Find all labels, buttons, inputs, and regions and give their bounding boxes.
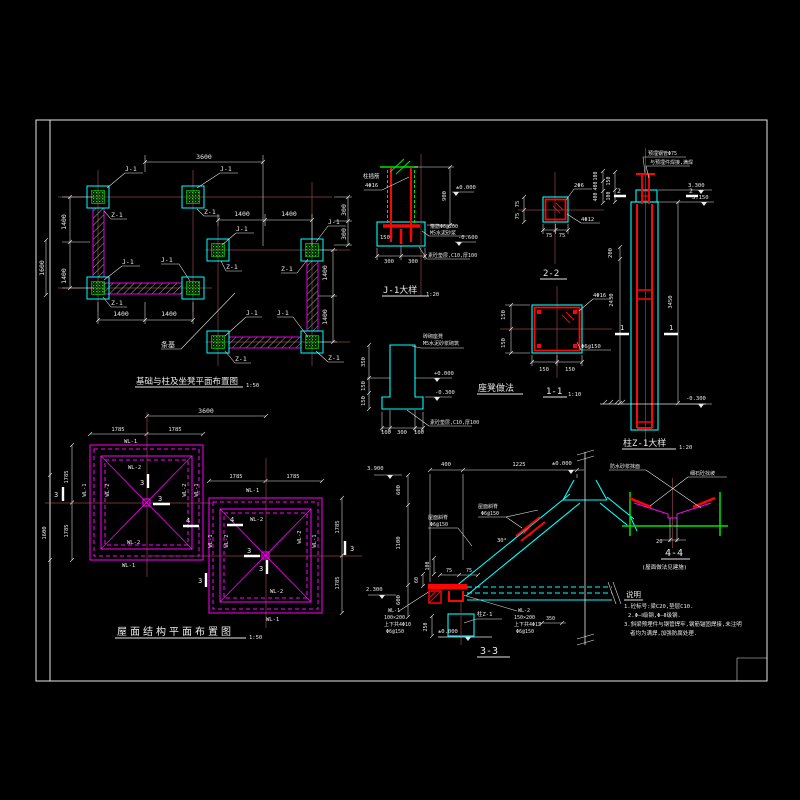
foundation_plan-label-12: 1400 — [60, 268, 68, 284]
sec_3_3-label-3: ±0.000 — [552, 461, 572, 467]
foundation_plan-label-6: 1400 — [281, 210, 297, 218]
roof_plan-label-23: WL-1 — [208, 534, 214, 547]
sec_2_2-label-8: 400 — [593, 192, 599, 201]
foundation_plan-label-11: 1400 — [60, 214, 68, 230]
j1_detail-label-3: ±0.000 — [456, 185, 476, 191]
sec_2_2-label-2: 75 — [515, 201, 521, 208]
sec_3_3-label-9: Φ6@150 — [481, 511, 499, 517]
foundation_plan-label-27: 条基 — [161, 340, 175, 349]
bench_detail-label-1: M5水泥砂浆砌筑 — [423, 340, 459, 347]
sec_2_2-label-4: 75 — [546, 233, 553, 239]
bench_detail-label-0: 砖砌座凳 — [423, 333, 443, 340]
sec_3_3-label-1: 400 — [441, 462, 451, 468]
foundation_plan-label-7: J-1 — [236, 225, 248, 233]
notes-heading: 说明 — [626, 589, 641, 599]
roof_plan-label-6: WL-2 — [105, 483, 111, 496]
sec_1_1-scale: 1:10 — [568, 392, 581, 398]
notes-label-2: 2.Φ—Ⅰ级钢,Φ—Ⅱ级钢. — [628, 611, 681, 619]
roof_plan-label-33: 1785 — [335, 520, 341, 533]
sec_3_3-label-23: 柱Z-1 — [477, 610, 492, 618]
sec_2_2-label-0: 2Φ6 — [574, 183, 584, 189]
notes-label-4: 者均为满焊,加强防腐处理. — [630, 629, 697, 637]
col_z1-scale: 1:20 — [679, 445, 692, 451]
sec_3_3-label-26: 上下共4Φ12 — [514, 621, 541, 628]
roof_plan-label-32: WL-1 — [266, 617, 279, 623]
sec_2_2-title: 2-2 — [543, 269, 559, 279]
bench_detail-label-3: 150 — [361, 381, 367, 391]
foundation_plan-label-17: 1400 — [113, 310, 129, 318]
roof_plan-label-24: WL-2 — [224, 534, 230, 547]
foundation_plan-label-13: 1600 — [38, 260, 46, 276]
col_z1-label-0: 预埋钢管Φ75 — [648, 150, 677, 157]
col_z1-title: 柱Z-1大样 — [623, 437, 666, 449]
col_z1-label-1: 与预埋件焊接,满焊 — [650, 159, 693, 166]
cad-drawing-sheet: 3600J-1J-1Z-1Z-114001400J-1J-1Z-1Z-11400… — [0, 0, 800, 800]
roof_plan-label-4: WL-2 — [128, 465, 141, 471]
bench_detail-label-6: -0.300 — [435, 390, 455, 396]
roof_plan-label-7: WL-2 — [182, 483, 188, 496]
sec_3_3-label-17: WL-1 — [388, 608, 400, 614]
foundation_plan-label-0: 3600 — [196, 153, 212, 161]
j1_detail-label-4: -0.600 — [458, 235, 478, 241]
beam-top-bar — [428, 584, 467, 590]
bench_detail-label-10: 素砼垫层,C10,厚100 — [430, 419, 479, 426]
sec_3_3-label-20: Φ6@150 — [386, 629, 404, 635]
sec_1_1-label-3: 150 — [501, 338, 507, 348]
sec_3_3-label-28: 350 — [546, 616, 555, 622]
foundation_plan-label-24: 1400 — [321, 309, 329, 325]
j1_detail-label-1: 4Φ16 — [365, 183, 378, 189]
roof_plan-label-1: 1785 — [111, 427, 124, 433]
foundation_plan-label-18: 1400 — [161, 310, 177, 318]
roof_plan-scale: 1:50 — [249, 635, 262, 641]
foundation_plan-label-1: J-1 — [125, 165, 137, 173]
foundation_plan-label-21: Z-1 — [235, 355, 247, 363]
strip-foundation — [307, 261, 318, 331]
foundation_plan-label-8: J-1 — [328, 218, 340, 226]
col_z1-label-6: 2 — [617, 187, 621, 195]
foundation_plan-label-4: Z-1 — [204, 208, 216, 216]
j1_detail-label-5: 150 — [380, 235, 390, 241]
foundation_plan-label-19: J-1 — [246, 309, 258, 317]
j1_detail-label-10: 素砼垫层,C10,厚100 — [428, 252, 477, 259]
sec_2_2-label-5: 75 — [559, 233, 566, 239]
foundation_plan-label-14: J-1 — [122, 258, 134, 266]
foundation_plan-scale: 1:50 — [246, 383, 259, 389]
sec_3_3-label-12: 75 — [466, 568, 472, 574]
roof_plan-label-17: 1600 — [42, 526, 48, 539]
roof_plan-label-18: 1785 — [229, 474, 242, 480]
col_z1-label-12: 1 — [669, 324, 673, 332]
notes-label-3: 3.斜梁预埋件与钢管焊牢,钢筋锚固焊接,未注明 — [624, 620, 742, 628]
bench_detail-label-5: +0.000 — [434, 371, 454, 377]
col_z1-label-11: 1 — [620, 324, 624, 332]
bench_detail-label-9: 100 — [414, 430, 424, 436]
foundation_plan-label-15: J-1 — [161, 256, 173, 264]
sec_3_3-label-4: 600 — [396, 485, 402, 495]
column-section — [187, 191, 200, 204]
sec_3_3-label-5: 1100 — [396, 536, 402, 549]
j1_detail-label-8: 箍筋Φ6@200 — [430, 223, 458, 230]
foundation_plan-label-5: 1400 — [234, 210, 250, 218]
foundation_plan-label-22: Z-1 — [328, 354, 340, 362]
bench_detail-title: 座凳做法 — [478, 382, 514, 394]
roof_plan-label-31: WL-2 — [270, 589, 283, 595]
roof_plan-label-14: WL-1 — [122, 563, 135, 569]
sec_1_1-label-0: 4Φ16 — [593, 293, 606, 299]
sec_3_3-label-11: 75 — [446, 568, 452, 574]
j1_detail-scale: 1:20 — [426, 292, 439, 298]
notes-label-1: 1.砼标号:梁C20,垫层C10. — [624, 602, 693, 610]
roof_plan-label-30: 3 — [198, 577, 202, 585]
col_z1-label-9: 2430 — [609, 293, 615, 306]
sec_3_3-label-16: 2.300 — [366, 587, 383, 593]
col_z1-label-8: 200 — [608, 248, 614, 258]
sec_3_3-label-0: 3.900 — [367, 466, 384, 472]
foundation_plan-label-25: 300 — [340, 204, 348, 216]
sec_3_3-label-18: 100×200 — [384, 615, 405, 621]
roof_plan-label-8: WL-1 — [194, 483, 200, 496]
col_z1-label-4: 150 — [606, 176, 612, 185]
sec_2_2-label-3: 75 — [515, 213, 521, 220]
sec_3_3-label-24: WL-2 — [518, 608, 530, 614]
roof_plan-label-16: 1785 — [64, 524, 70, 537]
sec_3_3-label-6: 屋面斜脊 — [428, 514, 448, 521]
bench_detail-label-4: 150 — [361, 396, 367, 406]
column-section — [187, 282, 200, 295]
bench_detail-label-7: 100 — [381, 430, 391, 436]
sec_3_3-label-10: 30° — [497, 538, 507, 544]
roof_plan-label-19: 1785 — [286, 474, 299, 480]
j1_detail-label-9: M5水泥砂浆 — [430, 230, 456, 237]
sec_1_1-label-4: 150 — [539, 367, 549, 373]
strip-foundation — [229, 337, 301, 348]
roof_plan-label-27: 3 — [247, 547, 251, 555]
col_z1-label-5: 100 — [606, 191, 612, 200]
foundation_plan-label-16: Z-1 — [111, 299, 123, 307]
roof_plan-label-5: WL-1 — [82, 483, 88, 496]
roof_plan-label-12: 4 — [186, 517, 190, 525]
foundation_plan-label-20: J-1 — [277, 309, 289, 317]
sec_3_3-label-14: 60 — [414, 577, 420, 583]
bench_detail-label-2: 350 — [361, 357, 367, 367]
foundation_plan-title: 基础与柱及坐凳平面布置图 — [136, 376, 238, 387]
foundation_plan-label-2: J-1 — [220, 165, 232, 173]
foundation_plan-label-3: Z-1 — [111, 211, 123, 219]
roof_plan-title: 屋面结构平面布置图 — [117, 625, 234, 638]
foundation_plan-label-10: Z-1 — [281, 265, 293, 273]
sec_3_3-label-7: Φ6@150 — [430, 522, 448, 528]
sec_4_4-label-4: (屋面做法见建施) — [642, 563, 687, 571]
roof_plan-label-20: WL-1 — [246, 488, 259, 494]
roof_plan-label-11: 3 — [140, 479, 144, 487]
sec_3_3-label-15: 600 — [396, 595, 402, 605]
roof_plan-label-10: 3 — [158, 495, 162, 503]
sec_4_4-label-0: 防水砂浆抹面 — [610, 463, 640, 470]
j1_detail-title: J-1大样 — [383, 284, 417, 296]
roof_plan-label-25: WL-2 — [297, 530, 303, 543]
roof_plan-label-15: 1785 — [64, 470, 70, 483]
sec_4_4-title: 4-4 — [665, 548, 683, 559]
roof_plan-label-28: 3 — [259, 565, 263, 573]
col_z1-label-13: -0.300 — [686, 396, 706, 402]
roof_plan-label-13: WL-2 — [127, 540, 140, 546]
j1_detail-label-2: 900 — [442, 191, 448, 201]
sec_2_2-label-6: 100 — [593, 171, 599, 180]
roof_plan-label-22: 4 — [230, 516, 234, 524]
j1_detail-label-6: 300 — [384, 259, 394, 265]
sec_3_3-label-19: 上下共4Φ10 — [384, 621, 411, 628]
sec_1_1-label-2: 150 — [501, 310, 507, 320]
roof_plan-label-29: 3 — [350, 545, 354, 553]
sec_3_3-label-2: 1225 — [512, 462, 525, 468]
column-section — [212, 244, 225, 257]
column-section — [306, 336, 319, 349]
sec_1_1-label-1: Φ6@150 — [581, 344, 601, 350]
sec_1_1-label-5: 150 — [565, 367, 575, 373]
roof_plan-label-34: 1785 — [335, 576, 341, 589]
roof_plan-label-21: WL-2 — [250, 517, 263, 523]
roof_plan-label-3: WL-1 — [124, 439, 137, 445]
roof_plan-label-0: 3600 — [198, 407, 214, 415]
column-section — [212, 336, 225, 349]
sec_1_1-title: 1-1 — [546, 387, 562, 397]
sec_3_3-title: 3-3 — [480, 646, 498, 657]
sec_3_3-label-21: 250 — [423, 622, 429, 631]
j1_detail-label-7: 300 — [408, 259, 418, 265]
sec_3_3-label-22: ±0.000 — [438, 629, 458, 635]
sec_2_2-label-1: 4Φ12 — [581, 217, 594, 223]
strip-foundation — [93, 208, 104, 277]
col_z1-label-10: 3450 — [668, 295, 674, 308]
sec_4_4-label-1: 细石砼找坡 — [690, 470, 715, 477]
sec_2_2-label-7: 400 — [593, 181, 599, 190]
sec_3_3-label-8: 屋面斜脊 — [478, 503, 498, 510]
sec_3_3-label-25: 150×200 — [514, 615, 535, 621]
sec_4_4-label-2: 20 — [656, 539, 663, 545]
foundation_plan-label-9: Z-1 — [226, 263, 238, 271]
foundation_plan-label-26: 300 — [340, 228, 348, 240]
foundation_plan-label-23: 1400 — [321, 265, 329, 281]
roof_plan-label-2: 1785 — [168, 427, 181, 433]
col_z1-label-3: 3.150 — [692, 195, 709, 201]
sec_3_3-label-27: Φ6@150 — [516, 629, 534, 635]
col_z1-label-7: 2 — [689, 187, 693, 195]
bench_detail-label-8: 300 — [397, 430, 407, 436]
roof_plan-label-9: 3 — [54, 491, 58, 499]
sec_3_3-label-13: 100 — [425, 561, 431, 570]
j1_detail-label-0: 柱插筋 — [363, 172, 380, 180]
roof_plan-label-26: WL-1 — [312, 534, 318, 547]
strip-foundation — [104, 283, 182, 294]
